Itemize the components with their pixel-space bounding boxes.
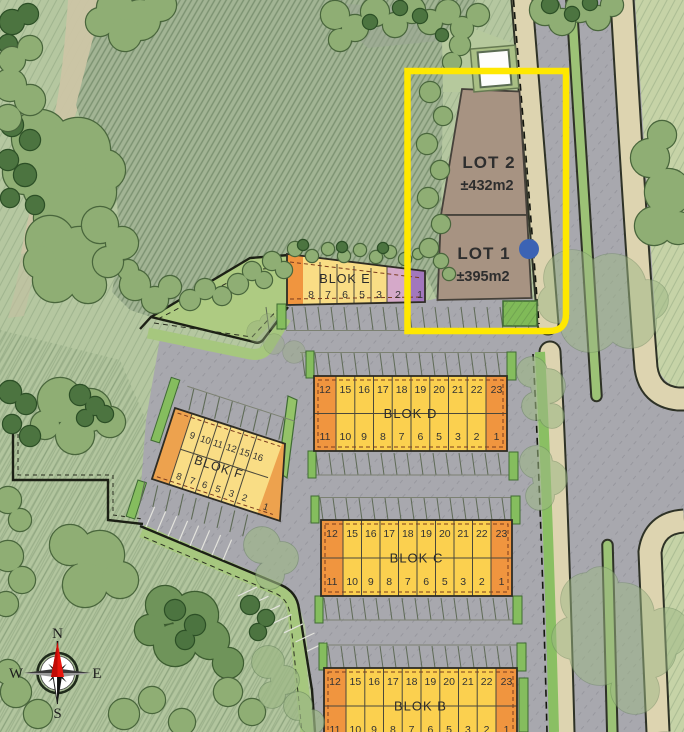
svg-text:±432m2: ±432m2 [460,178,513,194]
svg-text:7: 7 [409,724,415,732]
svg-text:21: 21 [452,384,464,396]
svg-text:5: 5 [442,576,448,588]
svg-text:BLOK D: BLOK D [384,406,438,421]
svg-text:5: 5 [446,724,452,732]
svg-text:20: 20 [433,384,445,396]
svg-text:LOT 1: LOT 1 [457,244,510,263]
svg-text:22: 22 [481,676,493,688]
svg-text:1: 1 [494,431,500,443]
svg-text:6: 6 [417,431,423,443]
svg-text:15: 15 [340,384,352,396]
svg-text:21: 21 [462,676,474,688]
svg-text:15: 15 [350,676,362,688]
svg-text:5: 5 [436,431,442,443]
svg-text:8: 8 [308,289,314,301]
svg-text:W: W [9,666,24,682]
svg-text:11: 11 [320,431,331,443]
svg-text:7: 7 [325,289,331,301]
svg-text:18: 18 [406,676,418,688]
svg-text:12: 12 [329,676,341,688]
svg-text:6: 6 [427,724,433,732]
svg-text:12: 12 [326,528,338,540]
svg-text:22: 22 [476,528,488,540]
svg-text:BLOK B: BLOK B [394,699,447,714]
svg-text:9: 9 [368,576,374,588]
svg-text:1: 1 [417,289,423,301]
svg-text:S: S [53,706,61,722]
svg-text:22: 22 [471,384,483,396]
svg-text:19: 19 [415,384,427,396]
svg-text:2: 2 [484,724,490,732]
svg-text:1: 1 [499,576,505,588]
svg-text:3: 3 [465,724,471,732]
svg-text:7: 7 [399,431,405,443]
svg-text:3: 3 [460,576,466,588]
svg-text:23: 23 [496,528,508,540]
svg-text:8: 8 [386,576,392,588]
svg-text:9: 9 [371,724,377,732]
svg-text:17: 17 [383,528,395,540]
svg-text:BLOK C: BLOK C [390,551,444,566]
svg-text:19: 19 [420,528,432,540]
svg-text:±395m2: ±395m2 [456,269,509,285]
svg-text:11: 11 [327,576,338,588]
svg-text:10: 10 [340,431,352,443]
svg-text:2: 2 [474,431,480,443]
svg-text:16: 16 [358,384,370,396]
svg-text:5: 5 [359,289,365,301]
svg-text:12: 12 [319,384,331,396]
svg-text:16: 16 [365,528,377,540]
svg-text:20: 20 [439,528,451,540]
svg-text:1: 1 [504,724,510,732]
svg-text:7: 7 [405,576,411,588]
svg-text:9: 9 [361,431,367,443]
svg-text:18: 18 [402,528,414,540]
svg-text:21: 21 [457,528,469,540]
svg-text:LOT 2: LOT 2 [462,153,515,172]
svg-text:18: 18 [396,384,408,396]
svg-text:6: 6 [423,576,429,588]
svg-text:6: 6 [342,289,348,301]
svg-text:10: 10 [350,724,362,732]
svg-text:17: 17 [377,384,389,396]
svg-text:2: 2 [479,576,485,588]
svg-text:10: 10 [346,576,358,588]
svg-text:8: 8 [380,431,386,443]
svg-text:N: N [52,626,63,642]
svg-text:19: 19 [425,676,437,688]
svg-text:16: 16 [368,676,380,688]
svg-text:17: 17 [387,676,399,688]
svg-text:20: 20 [443,676,455,688]
svg-text:BLOK E: BLOK E [319,272,370,286]
svg-text:15: 15 [346,528,358,540]
svg-text:23: 23 [501,676,513,688]
svg-text:3: 3 [455,431,461,443]
svg-text:11: 11 [330,724,341,732]
svg-text:E: E [92,666,101,682]
svg-text:8: 8 [390,724,396,732]
svg-text:3: 3 [376,289,382,301]
svg-text:2: 2 [395,289,401,301]
svg-text:23: 23 [491,384,503,396]
